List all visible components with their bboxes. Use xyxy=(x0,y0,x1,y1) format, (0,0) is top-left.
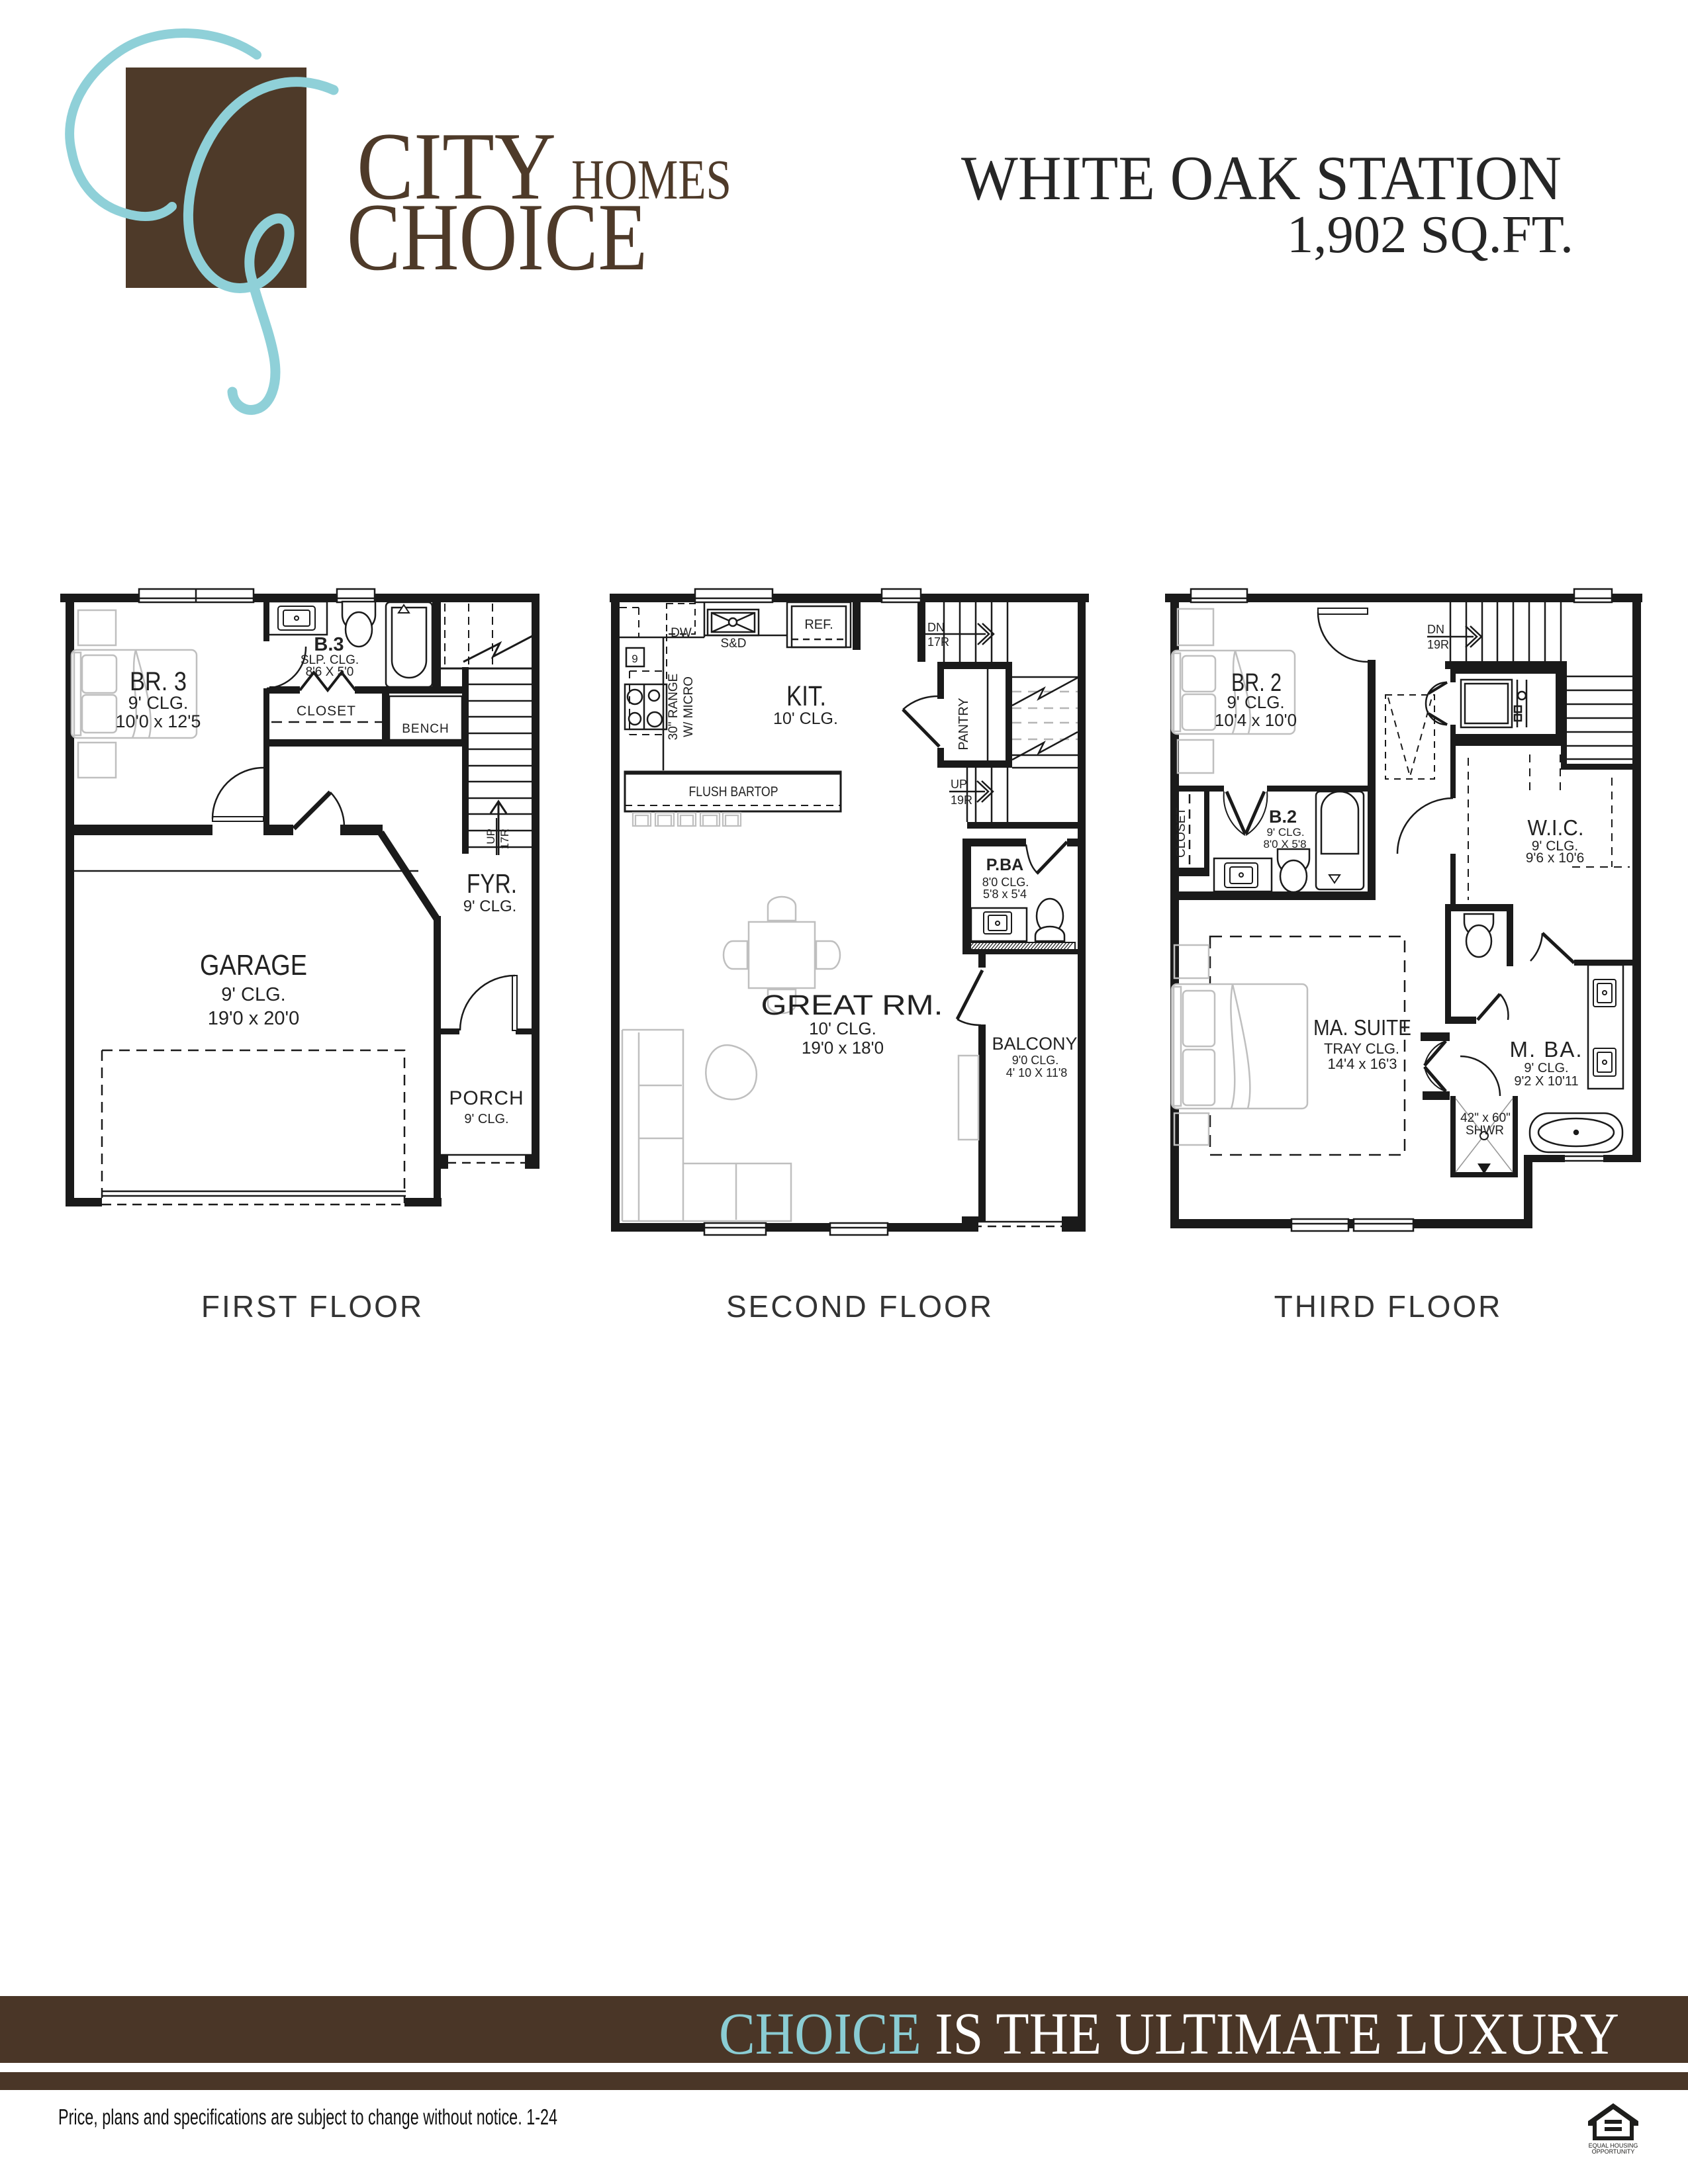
svg-text:9' CLG.: 9' CLG. xyxy=(464,1112,508,1126)
svg-text:SECOND FLOOR: SECOND FLOOR xyxy=(726,1289,994,1324)
svg-text:W/ MICRO: W/ MICRO xyxy=(682,676,696,737)
svg-text:9'2 X 10'11: 9'2 X 10'11 xyxy=(1514,1074,1578,1089)
svg-text:5'8 x 5'4: 5'8 x 5'4 xyxy=(983,887,1027,901)
svg-text:GARAGE: GARAGE xyxy=(200,949,307,981)
svg-text:19'0 x 18'0: 19'0 x 18'0 xyxy=(802,1038,884,1058)
svg-text:30" RANGE: 30" RANGE xyxy=(667,674,680,741)
svg-text:19R: 19R xyxy=(951,794,972,807)
svg-text:WHITE OAK STATION: WHITE OAK STATION xyxy=(961,143,1562,213)
svg-text:MA. SUITE: MA. SUITE xyxy=(1313,1015,1411,1040)
svg-text:GREAT RM.: GREAT RM. xyxy=(761,989,943,1021)
svg-text:10'4 x 10'0: 10'4 x 10'0 xyxy=(1215,710,1297,730)
svg-text:8'0 X 5'8: 8'0 X 5'8 xyxy=(1263,838,1306,850)
svg-text:14'4 x 16'3: 14'4 x 16'3 xyxy=(1327,1056,1397,1072)
svg-text:9' CLG.: 9' CLG. xyxy=(128,693,189,713)
svg-text:9'0 CLG.: 9'0 CLG. xyxy=(1012,1054,1058,1067)
svg-text:TRAY CLG.: TRAY CLG. xyxy=(1324,1040,1399,1057)
svg-text:BALCONY: BALCONY xyxy=(992,1034,1077,1054)
svg-text:17R: 17R xyxy=(498,829,511,849)
svg-text:9'6 x 10'6: 9'6 x 10'6 xyxy=(1526,850,1585,866)
svg-text:DN: DN xyxy=(1427,623,1444,636)
svg-text:CHOICE: CHOICE xyxy=(347,183,647,291)
svg-text:OPPORTUNITY: OPPORTUNITY xyxy=(1592,2148,1635,2155)
svg-text:10'0 x 12'5: 10'0 x 12'5 xyxy=(116,711,201,731)
svg-text:FIRST FLOOR: FIRST FLOOR xyxy=(201,1289,424,1324)
svg-text:THIRD FLOOR: THIRD FLOOR xyxy=(1274,1289,1503,1324)
svg-text:BR. 3: BR. 3 xyxy=(130,667,187,696)
svg-text:S&D: S&D xyxy=(720,637,746,651)
svg-text:42" x 60": 42" x 60" xyxy=(1460,1111,1511,1125)
svg-text:UP: UP xyxy=(485,829,497,844)
svg-text:CLOSET: CLOSET xyxy=(297,704,356,719)
svg-text:DN: DN xyxy=(927,621,945,634)
svg-text:UP: UP xyxy=(951,778,967,791)
svg-text:SHWR: SHWR xyxy=(1466,1124,1504,1138)
svg-text:CHOICE IS THE ULTIMATE LUXURY: CHOICE IS THE ULTIMATE LUXURY xyxy=(719,2001,1619,2067)
svg-text:9' CLG.: 9' CLG. xyxy=(1266,826,1304,839)
svg-text:17R: 17R xyxy=(927,635,949,649)
svg-text:W.I.C.: W.I.C. xyxy=(1528,815,1584,840)
svg-text:19'0 x 20'0: 19'0 x 20'0 xyxy=(208,1008,299,1029)
svg-text:9: 9 xyxy=(632,653,637,665)
svg-text:4' 10 X 11'8: 4' 10 X 11'8 xyxy=(1006,1066,1068,1079)
svg-text:9' CLG.: 9' CLG. xyxy=(1524,1061,1568,1075)
svg-text:PANTRY: PANTRY xyxy=(957,698,971,750)
svg-text:19R: 19R xyxy=(1427,638,1449,651)
svg-text:9' CLG.: 9' CLG. xyxy=(1227,692,1284,712)
svg-text:B.2: B.2 xyxy=(1269,807,1297,827)
svg-text:P.BA: P.BA xyxy=(986,856,1024,874)
svg-text:DW: DW xyxy=(671,626,692,640)
svg-text:9' CLG.: 9' CLG. xyxy=(221,984,285,1005)
svg-text:PORCH: PORCH xyxy=(449,1087,524,1109)
svg-text:10' CLG.: 10' CLG. xyxy=(773,709,838,728)
svg-text:BENCH: BENCH xyxy=(402,722,449,736)
svg-text:1,902 SQ.FT.: 1,902 SQ.FT. xyxy=(1287,206,1573,264)
svg-text:REF.: REF. xyxy=(804,617,833,632)
svg-text:CLOSET: CLOSET xyxy=(1174,807,1188,858)
svg-text:8'6 X 5'0: 8'6 X 5'0 xyxy=(306,665,354,679)
svg-text:9' CLG.: 9' CLG. xyxy=(463,897,517,915)
svg-text:M. BA.: M. BA. xyxy=(1509,1037,1583,1062)
svg-text:Price, plans and specification: Price, plans and specifications are subj… xyxy=(58,2105,557,2129)
svg-text:B.3: B.3 xyxy=(314,634,344,655)
svg-text:FLUSH BARTOP: FLUSH BARTOP xyxy=(689,784,778,799)
svg-text:FYR.: FYR. xyxy=(467,868,517,899)
svg-text:10' CLG.: 10' CLG. xyxy=(809,1019,876,1038)
svg-text:8'0 CLG.: 8'0 CLG. xyxy=(982,876,1029,889)
svg-text:KIT.: KIT. xyxy=(786,680,826,712)
